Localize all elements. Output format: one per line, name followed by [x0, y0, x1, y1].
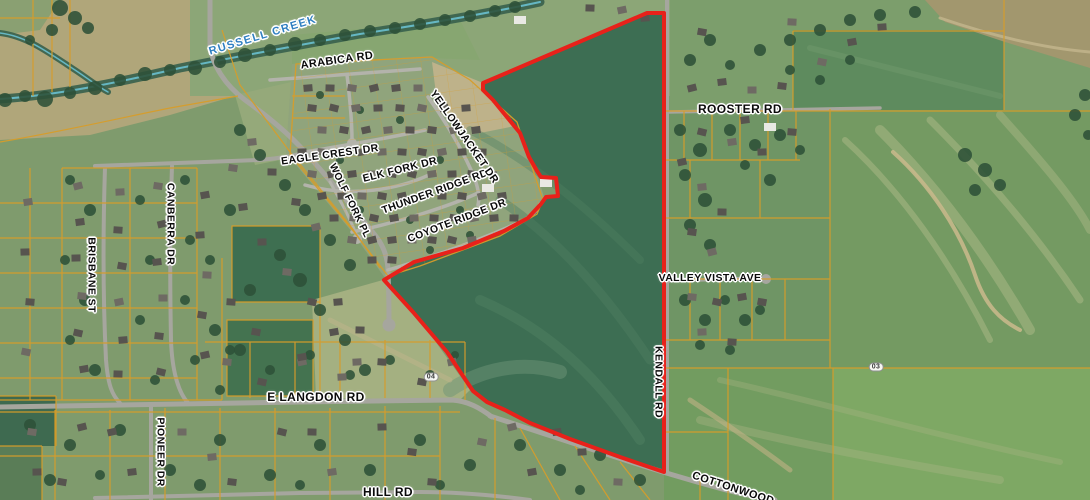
aerial-imagery [0, 0, 1090, 500]
map-view[interactable]: RUSSELL CREEKARABICA RDEAGLE CREST DRELK… [0, 0, 1090, 500]
